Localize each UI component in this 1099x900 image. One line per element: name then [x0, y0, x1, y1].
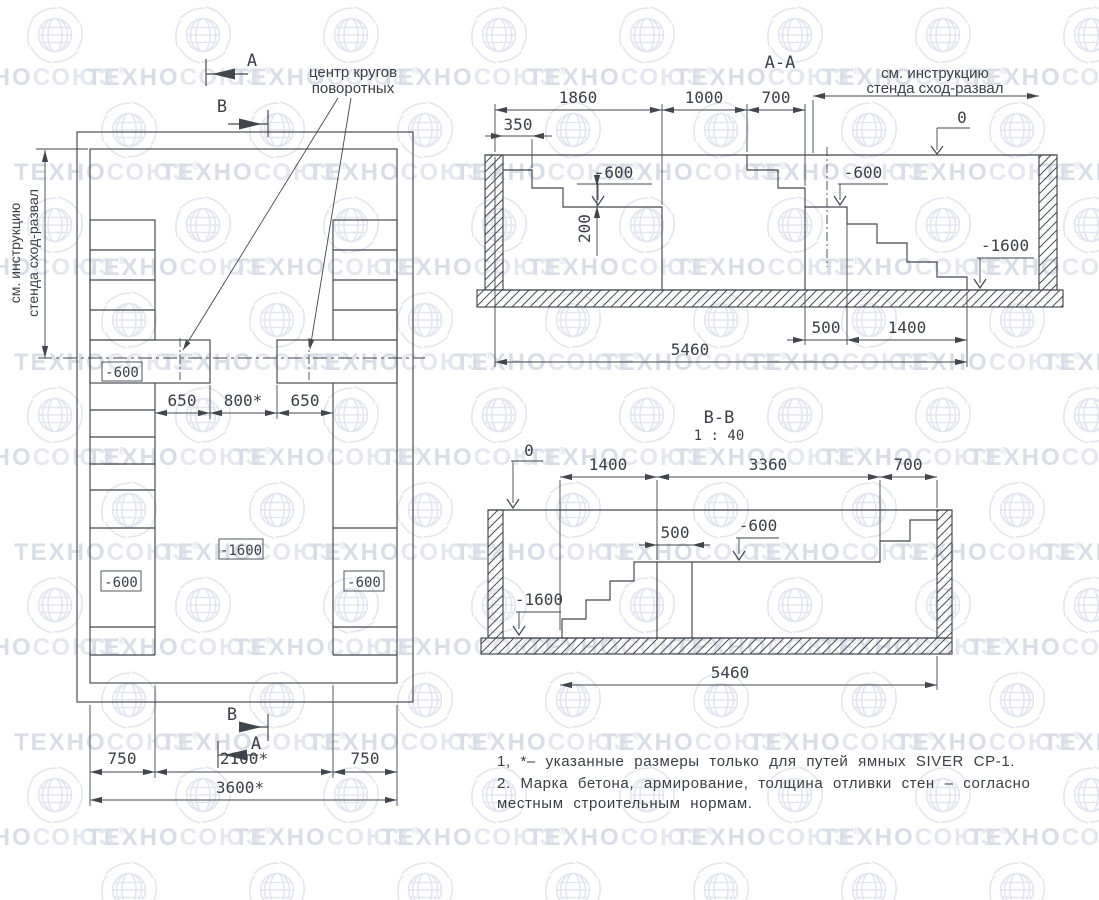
dim-1400-bb: 1400 — [589, 455, 628, 474]
level-1600-label: -1600 — [220, 543, 262, 559]
dim-5460-bb: 5460 — [711, 663, 750, 682]
plan-instruction-line2: стенда сход-развал — [25, 189, 41, 317]
dim-500-bb: 500 — [661, 523, 690, 542]
level-600-left-label: -600 — [104, 575, 138, 591]
turn-circles-note-line1: центр кругов — [309, 64, 397, 81]
drawing-sheet: ТЕХНОСОЮЗ®ТЕХНОСОЮЗ®ТЕХНОСОЮЗ®ТЕХНОСОЮЗ®… — [0, 0, 1099, 900]
dim-750-left: 750 — [108, 749, 137, 768]
dim-350: 350 — [504, 115, 533, 134]
dim-700-aa: 700 — [762, 88, 791, 107]
section-bb-title: B-B — [704, 408, 735, 428]
svg-text:ТЕХНОСОЮЗ®: ТЕХНОСОЮЗ® — [1043, 729, 1099, 756]
dim-750-right: 750 — [351, 749, 380, 768]
dim-700-bb: 700 — [894, 455, 923, 474]
plan-inner-wall — [90, 149, 397, 683]
dim-650-left: 650 — [168, 391, 197, 410]
leader-left — [183, 98, 338, 350]
leader-right — [310, 98, 351, 349]
plan-instruction-line1: см. инструкцию — [7, 203, 23, 303]
aa-instruction-line2: стенда сход-развал — [867, 80, 1004, 97]
dim-1000: 1000 — [685, 88, 724, 107]
turn-circles-note-line2: поворотных — [312, 80, 395, 97]
aa-zero-datum: 0 — [931, 108, 970, 154]
svg-text:ТЕХНОСОЮЗ®: ТЕХНОСОЮЗ® — [1043, 539, 1099, 566]
bb-zero-label: 0 — [524, 441, 534, 460]
note-line-2: 2. Марка бетона, армирование, толщина от… — [497, 775, 1030, 792]
level-600-right-label: -600 — [347, 575, 381, 591]
bb-wall-right — [937, 510, 952, 638]
svg-text:-600: -600 — [739, 516, 778, 535]
section-aa-title: А-А — [765, 53, 796, 73]
bb-level-1600: -1600 — [513, 590, 563, 635]
svg-text:ТЕХНОСОЮЗ®: ТЕХНОСОЮЗ® — [969, 634, 1099, 661]
note-line-3: местным строительным нормам. — [497, 795, 753, 812]
bb-floor-slab — [481, 638, 952, 654]
svg-text:-1600: -1600 — [515, 590, 563, 609]
note-line-1: 1, *– указанные размеры только для путей… — [497, 753, 1015, 770]
dim-3360: 3360 — [749, 455, 788, 474]
aa-zero-label: 0 — [957, 108, 967, 127]
dim-1400-aa: 1400 — [888, 318, 927, 337]
svg-text:ТЕХНОСОЮЗ®: ТЕХНОСОЮЗ® — [1043, 349, 1099, 376]
aa-wall-left — [485, 155, 503, 290]
bb-dim-5460: 5460 — [560, 656, 937, 690]
plan-dim-row-middle: 650 800* 650 — [155, 385, 333, 419]
dim-2100: 2100* — [220, 749, 268, 768]
section-bb-scale: 1 : 40 — [694, 428, 745, 444]
bb-wall-left — [488, 510, 503, 638]
technical-drawing: ТЕХНОСОЮЗ®ТЕХНОСОЮЗ®ТЕХНОСОЮЗ®ТЕХНОСОЮЗ®… — [0, 0, 1099, 900]
dim-800: 800* — [224, 391, 263, 410]
svg-text:-600: -600 — [595, 163, 634, 182]
dim-3600: 3600* — [216, 778, 264, 797]
aa-wall-right — [1039, 155, 1057, 290]
svg-text:B: B — [227, 705, 237, 725]
svg-text:-600: -600 — [844, 163, 883, 182]
dim-5460-aa: 5460 — [671, 340, 710, 359]
dim-200: 200 — [575, 214, 594, 243]
level-600-top-label: -600 — [105, 365, 139, 381]
dim-1860: 1860 — [559, 88, 598, 107]
svg-text:ТЕХНОСОЮЗ®: ТЕХНОСОЮЗ® — [969, 444, 1099, 471]
svg-text:B: B — [217, 97, 227, 117]
svg-text:ТЕХНОСОЮЗ®: ТЕХНОСОЮЗ® — [969, 824, 1099, 851]
aa-floor-slab — [477, 290, 1063, 307]
dim-500-aa: 500 — [812, 318, 841, 337]
svg-text:A: A — [247, 51, 257, 71]
dim-650-right: 650 — [291, 391, 320, 410]
svg-text:-1600: -1600 — [981, 236, 1029, 255]
